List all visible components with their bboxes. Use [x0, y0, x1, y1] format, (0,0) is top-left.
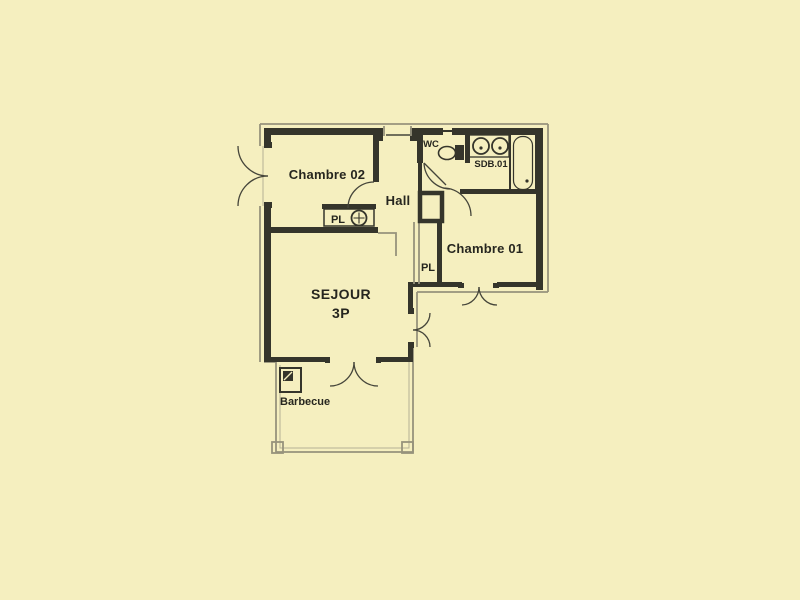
bathtub-inner — [514, 137, 533, 190]
sejour-east-jamb-bottom — [408, 342, 414, 348]
chambre01-door-jamb-right — [493, 283, 499, 288]
bathtub-drain — [525, 179, 528, 182]
sink-left-drain — [479, 146, 482, 149]
label-sejour-line1: SEJOUR — [311, 286, 371, 302]
floor-plan-page: Chambre 02 Hall WC SDB.01 Chambre 01 PL … — [0, 0, 800, 600]
wall-closet-chambre01-right — [437, 221, 442, 282]
wall-sejour-south-right — [378, 357, 413, 362]
window-hinge-top — [264, 142, 272, 148]
sejour-terrace-door-arc-left — [330, 362, 354, 386]
wall-sejour-south-left — [264, 357, 330, 362]
wall-right — [536, 128, 543, 290]
chambre01-french-door-arc-right — [479, 287, 497, 305]
wall-chambre01-south-left — [408, 282, 462, 287]
wall-chambre02-hall — [373, 133, 379, 182]
door-arcs — [238, 146, 497, 386]
sejour-terrace-door-arc-right — [354, 362, 378, 386]
label-closet-chambre01: PL — [421, 262, 435, 274]
room-labels: Chambre 02 Hall WC SDB.01 Chambre 01 PL … — [280, 139, 523, 408]
chambre01-door-jamb-left — [458, 283, 464, 288]
sink-left — [473, 138, 489, 154]
wall-chambre01-south-right — [497, 282, 537, 287]
floor-plan-svg: Chambre 02 Hall WC SDB.01 Chambre 01 PL … — [0, 0, 800, 600]
toilet-tank — [455, 145, 464, 160]
sejour-south-jamb-left — [325, 357, 330, 363]
closet-chambre01-left-wall — [414, 222, 419, 284]
toilet — [439, 147, 456, 160]
label-sejour-line2: 3P — [332, 305, 350, 321]
sink-right-drain — [498, 146, 501, 149]
sejour-south-jamb-right — [376, 357, 381, 363]
label-hall: Hall — [386, 193, 411, 208]
facade-line-bottom-right — [417, 292, 548, 347]
wall-top-left — [264, 128, 376, 135]
sejour-east-door-arc-bottom — [413, 330, 430, 347]
label-chambre-02: Chambre 02 — [289, 167, 365, 182]
label-sdb: SDB.01 — [474, 159, 508, 170]
wall-hall-duct — [418, 163, 422, 193]
sink-right — [492, 138, 508, 154]
wall-chambre02-south — [264, 227, 378, 233]
chambre01-french-door-arc-left — [462, 287, 479, 305]
label-chambre-01: Chambre 01 — [447, 241, 523, 256]
duct — [420, 193, 442, 221]
sejour-top-stub — [378, 233, 396, 256]
sejour-east-door-arc-top — [413, 313, 430, 330]
label-closet-chambre02: PL — [331, 214, 345, 226]
label-barbecue: Barbecue — [280, 396, 330, 408]
appliance-cross-icon — [354, 213, 365, 224]
label-wc: WC — [423, 139, 439, 150]
sejour-east-jamb-top — [408, 308, 414, 314]
